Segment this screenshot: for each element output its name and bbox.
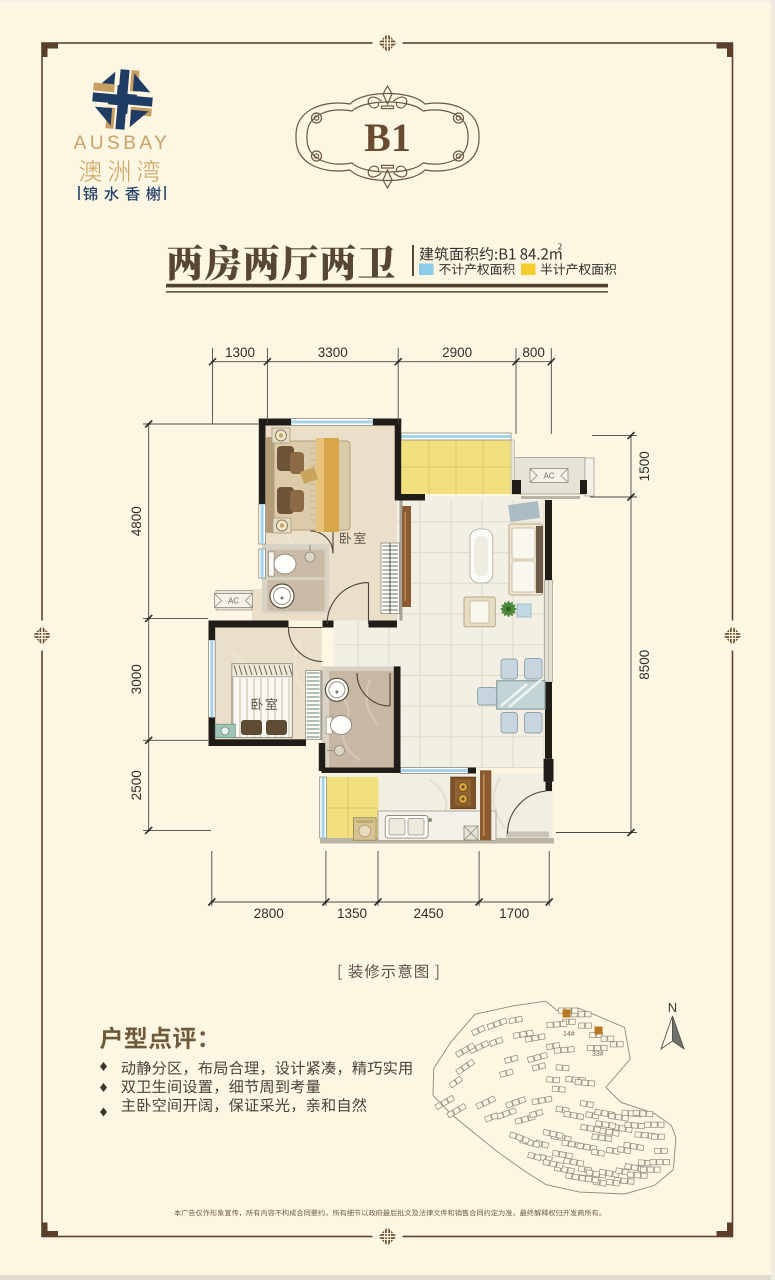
svg-text:1700: 1700 — [499, 906, 529, 921]
svg-text:3000: 3000 — [129, 664, 144, 694]
svg-text:2800: 2800 — [254, 906, 284, 921]
svg-text:B1: B1 — [364, 115, 411, 160]
svg-text:AC: AC — [543, 472, 554, 481]
svg-text:AUSBAY: AUSBAY — [74, 133, 171, 154]
svg-text:14#: 14# — [563, 1031, 575, 1038]
svg-text:4800: 4800 — [129, 506, 144, 536]
svg-text:1350: 1350 — [337, 906, 367, 921]
svg-text:8500: 8500 — [637, 650, 652, 680]
svg-text:3300: 3300 — [318, 345, 348, 360]
svg-text:1500: 1500 — [637, 451, 652, 481]
svg-text:800: 800 — [522, 345, 545, 360]
svg-text:2500: 2500 — [129, 770, 144, 800]
svg-text:2450: 2450 — [413, 906, 443, 921]
svg-text:N: N — [668, 1000, 677, 1015]
svg-text:AC: AC — [228, 597, 239, 606]
svg-text:1300: 1300 — [225, 345, 255, 360]
svg-text:2900: 2900 — [442, 345, 472, 360]
svg-text:33#: 33# — [592, 1051, 604, 1058]
